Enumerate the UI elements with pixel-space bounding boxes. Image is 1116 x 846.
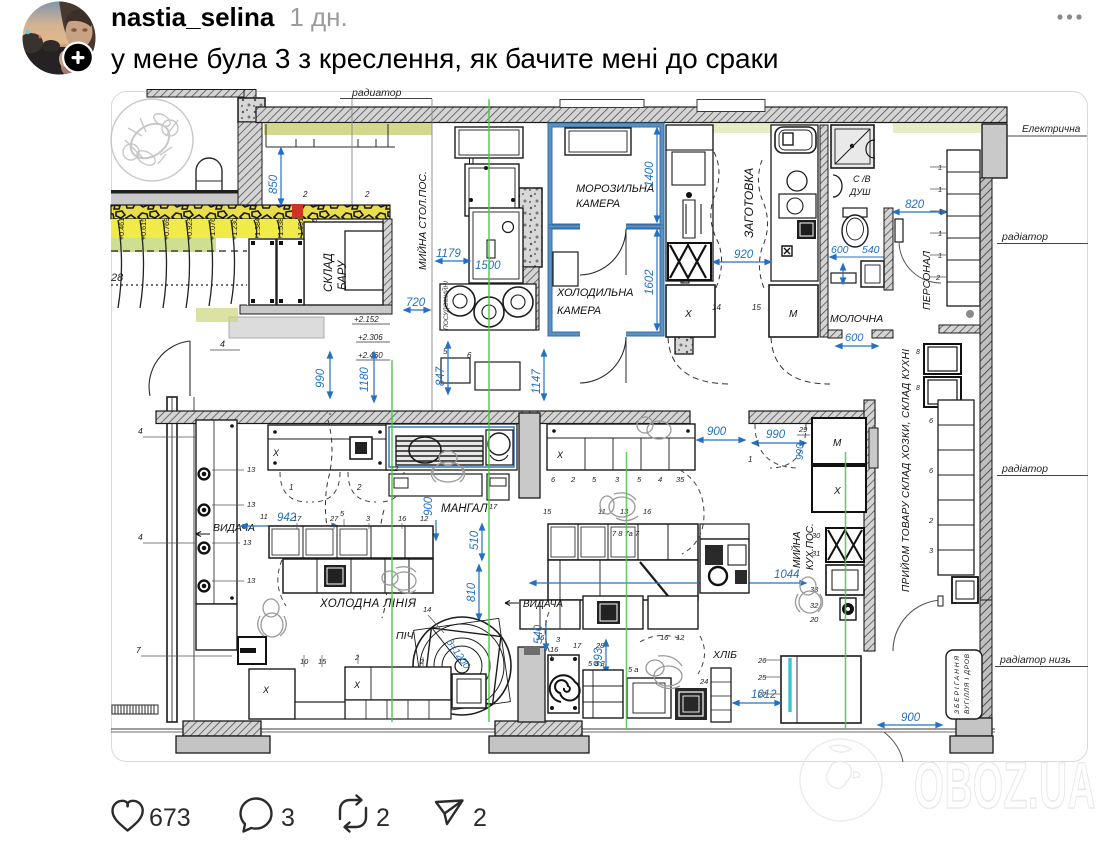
svg-text:радіатор: радіатор <box>1001 231 1048 243</box>
svg-text:ВИДАЧА: ВИДАЧА <box>523 599 563 610</box>
svg-text:30: 30 <box>812 531 821 540</box>
svg-text:510: 510 <box>469 530 481 550</box>
svg-text:1: 1 <box>938 251 942 260</box>
svg-text:+2.152: +2.152 <box>354 315 379 324</box>
svg-text:10: 10 <box>300 657 309 666</box>
svg-text:4: 4 <box>138 532 143 542</box>
svg-text:17: 17 <box>293 514 302 523</box>
svg-text:14: 14 <box>423 605 431 614</box>
svg-text:+2.306: +2.306 <box>358 333 383 342</box>
svg-text:27: 27 <box>329 514 339 523</box>
svg-text:990: 990 <box>766 429 786 441</box>
svg-text:3: 3 <box>281 804 295 832</box>
svg-text:15: 15 <box>543 507 552 516</box>
svg-text:990: 990 <box>795 443 806 460</box>
svg-text:5 а 3: 5 а 3 <box>588 659 606 668</box>
svg-text:ПІЧ: ПІЧ <box>396 630 415 642</box>
svg-text:920: 920 <box>734 249 754 261</box>
svg-text:14: 14 <box>712 303 721 312</box>
svg-text:ЗБЕРІГАННЯ: ЗБЕРІГАННЯ <box>954 656 961 715</box>
svg-text:31: 31 <box>812 549 820 558</box>
svg-text:2: 2 <box>419 657 425 666</box>
svg-text:820: 820 <box>905 199 925 211</box>
svg-text:2: 2 <box>935 273 941 282</box>
svg-text:1: 1 <box>748 455 752 464</box>
svg-text:673: 673 <box>149 804 191 832</box>
svg-text:М: М <box>833 438 842 449</box>
svg-text:1147: 1147 <box>531 369 543 394</box>
svg-text:ХОЛОДНА ЛІНІЯ: ХОЛОДНА ЛІНІЯ <box>319 598 416 610</box>
svg-text:25: 25 <box>757 673 767 682</box>
svg-text:X: X <box>684 309 692 320</box>
svg-text:28: 28 <box>110 272 124 284</box>
svg-text:990: 990 <box>315 368 327 388</box>
svg-text:М: М <box>789 309 798 320</box>
svg-text:16: 16 <box>660 633 669 642</box>
svg-text:+0.461: +0.461 <box>117 218 126 240</box>
svg-text:8: 8 <box>916 349 920 356</box>
svg-text:11: 11 <box>260 512 268 521</box>
svg-text:С /В: С /В <box>853 174 871 184</box>
svg-text:1: 1 <box>938 163 942 172</box>
svg-text:600: 600 <box>845 332 864 344</box>
svg-text:МИЙНА СТОЛ.ПОС.: МИЙНА СТОЛ.ПОС. <box>416 171 429 270</box>
svg-text:+1.076: +1.076 <box>208 218 217 240</box>
svg-text:ПРИЙОМ ТОВАРУ СКЛАД ХОЗКИ,: ПРИЙОМ ТОВАРУ СКЛАД ХОЗКИ, СКЛАД КУХНІ <box>899 349 912 592</box>
svg-text:1500: 1500 <box>475 260 501 272</box>
svg-text:+1.384: +1.384 <box>253 218 262 240</box>
svg-text:4: 4 <box>138 426 143 436</box>
svg-text:17: 17 <box>489 502 498 511</box>
svg-text:24: 24 <box>699 677 708 686</box>
svg-text:КАМЕРА: КАМЕРА <box>576 198 620 210</box>
svg-text:2: 2 <box>376 804 390 832</box>
svg-text:радіатор низь: радіатор низь <box>999 654 1071 666</box>
svg-text:1012: 1012 <box>751 689 777 701</box>
svg-text:13: 13 <box>247 465 256 474</box>
svg-text:ВИДАЧА: ВИДАЧА <box>213 522 255 534</box>
svg-text:ЗАГОТОВКА: ЗАГОТОВКА <box>742 168 756 238</box>
svg-text:X: X <box>262 685 270 695</box>
svg-text:2: 2 <box>473 804 487 832</box>
svg-text:ПЕРСОНАЛ: ПЕРСОНАЛ <box>921 250 933 310</box>
svg-text:720: 720 <box>406 297 426 309</box>
svg-text:26: 26 <box>757 656 767 665</box>
svg-text:5 а: 5 а <box>628 665 638 674</box>
svg-text:15: 15 <box>318 657 327 666</box>
svg-text:X: X <box>272 448 280 458</box>
svg-text:2: 2 <box>928 516 934 525</box>
svg-text:16: 16 <box>398 514 407 523</box>
svg-text:7: 7 <box>136 645 141 655</box>
svg-text:+0.923: +0.923 <box>185 218 194 240</box>
svg-text:12: 12 <box>420 514 429 523</box>
svg-text:радиатор: радиатор <box>351 87 402 99</box>
svg-text:X: X <box>556 450 564 460</box>
svg-text:Електрична: Електрична <box>1022 124 1081 135</box>
svg-text:+1.538: +1.538 <box>276 218 285 240</box>
svg-text:16: 16 <box>643 507 652 516</box>
svg-text:1: 1 <box>938 229 942 238</box>
svg-text:+0.615: +0.615 <box>139 218 148 240</box>
svg-text:2: 2 <box>570 475 576 484</box>
svg-text:6: 6 <box>467 351 472 360</box>
svg-text:8: 8 <box>916 385 920 392</box>
svg-text:ПОСУДОМИЙНІ: ПОСУДОМИЙНІ <box>441 281 450 330</box>
svg-text:17: 17 <box>573 641 582 650</box>
svg-text:847: 847 <box>435 366 447 386</box>
svg-text:X: X <box>353 680 361 690</box>
svg-text:540: 540 <box>862 244 880 256</box>
svg-text:1: 1 <box>289 483 293 492</box>
svg-text:1180: 1180 <box>359 367 371 392</box>
svg-text:32: 32 <box>810 601 819 610</box>
svg-text:13: 13 <box>247 576 256 585</box>
svg-text:БАРУ: БАРУ <box>337 259 349 290</box>
svg-text:ХОЛОДИЛЬНА: ХОЛОДИЛЬНА <box>556 287 633 299</box>
svg-text:35: 35 <box>676 475 685 484</box>
svg-text:ВУГІЛЛЯ І ДРОВ: ВУГІЛЛЯ І ДРОВ <box>964 653 971 714</box>
svg-text:15: 15 <box>752 303 761 312</box>
svg-text:ХЛІБ: ХЛІБ <box>712 649 737 661</box>
svg-text:4: 4 <box>220 339 225 349</box>
svg-text:X: X <box>833 486 841 497</box>
svg-text:2: 2 <box>354 653 360 662</box>
svg-text:1179: 1179 <box>436 248 461 260</box>
svg-text:КАМЕРА: КАМЕРА <box>557 305 601 317</box>
svg-text:900: 900 <box>707 426 727 438</box>
svg-text:+0.769: +0.769 <box>162 218 171 240</box>
svg-text:13: 13 <box>247 500 256 509</box>
svg-text:13: 13 <box>620 507 629 516</box>
svg-text:29: 29 <box>798 425 808 434</box>
svg-text:4: 4 <box>658 475 662 484</box>
svg-text:1: 1 <box>938 207 942 216</box>
svg-text:13: 13 <box>243 538 252 547</box>
svg-text:1602: 1602 <box>644 269 656 295</box>
svg-text:ДУШ: ДУШ <box>849 187 871 197</box>
svg-text:2: 2 <box>364 190 370 199</box>
svg-text:радіатор: радіатор <box>1001 463 1048 475</box>
svg-text:МИЙНА: МИЙНА <box>790 531 803 568</box>
svg-text:1044: 1044 <box>774 569 800 581</box>
svg-text:20: 20 <box>809 615 819 624</box>
svg-text:МАНГАЛ: МАНГАЛ <box>441 503 488 515</box>
svg-text:МОРОЗИЛЬНА: МОРОЗИЛЬНА <box>576 183 654 195</box>
svg-text:2: 2 <box>302 190 308 199</box>
svg-text:МОЛОЧНА: МОЛОЧНА <box>830 313 883 325</box>
svg-text:810: 810 <box>466 582 478 602</box>
svg-text:СКЛАД: СКЛАД <box>323 253 335 292</box>
svg-text:540: 540 <box>533 624 545 644</box>
svg-text:2: 2 <box>356 483 362 492</box>
svg-text:1400: 1400 <box>644 161 656 187</box>
svg-text:+2.460: +2.460 <box>358 351 383 360</box>
svg-text:+1.230: +1.230 <box>230 218 239 240</box>
svg-text:1: 1 <box>938 185 942 194</box>
svg-text:16: 16 <box>550 645 559 654</box>
svg-text:600: 600 <box>831 244 849 256</box>
svg-text:850: 850 <box>268 174 280 194</box>
